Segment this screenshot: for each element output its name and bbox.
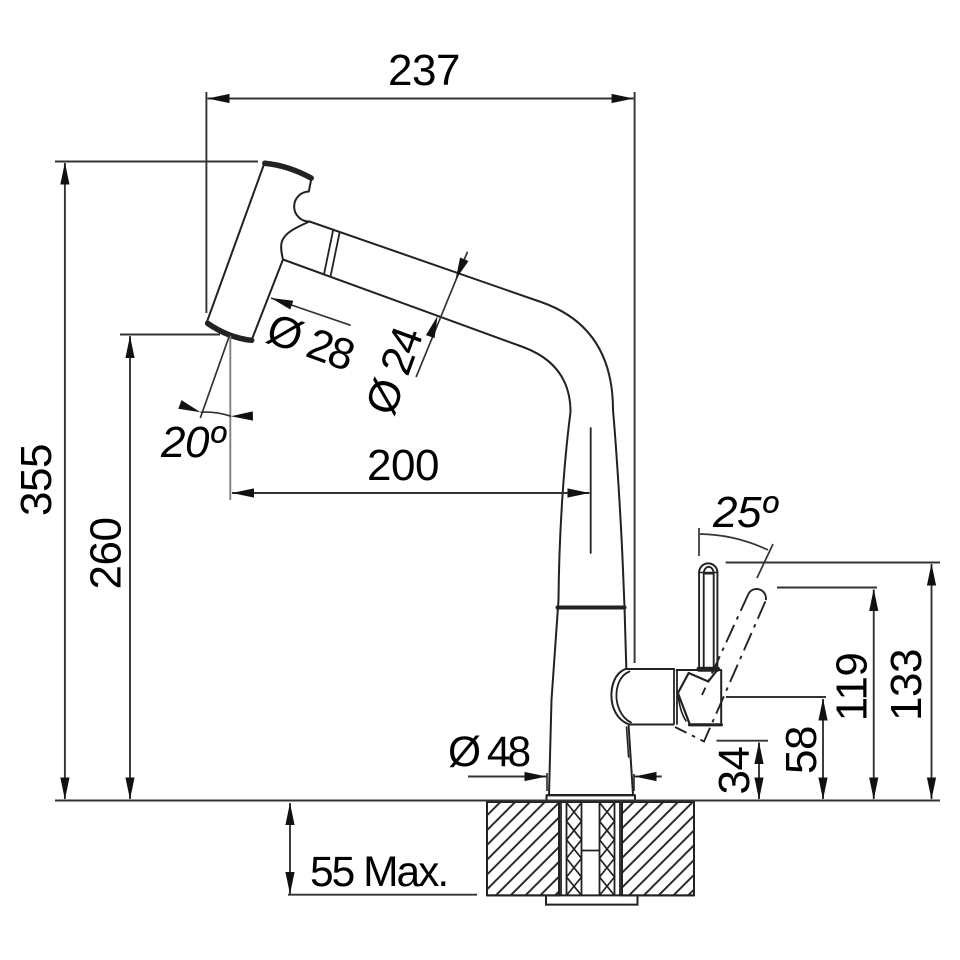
svg-text:25º: 25º [712, 488, 779, 537]
svg-text:355: 355 [12, 444, 61, 516]
svg-text:237: 237 [388, 46, 460, 95]
svg-text:260: 260 [82, 518, 131, 590]
svg-text:34: 34 [710, 747, 759, 795]
svg-text:20º: 20º [160, 418, 227, 467]
svg-text:119: 119 [828, 653, 877, 722]
svg-text:200: 200 [367, 441, 439, 490]
svg-text:58: 58 [777, 726, 826, 774]
svg-text:133: 133 [882, 649, 931, 721]
svg-text:Ø 48: Ø 48 [448, 729, 530, 776]
svg-text:55 Max.: 55 Max. [310, 849, 447, 896]
